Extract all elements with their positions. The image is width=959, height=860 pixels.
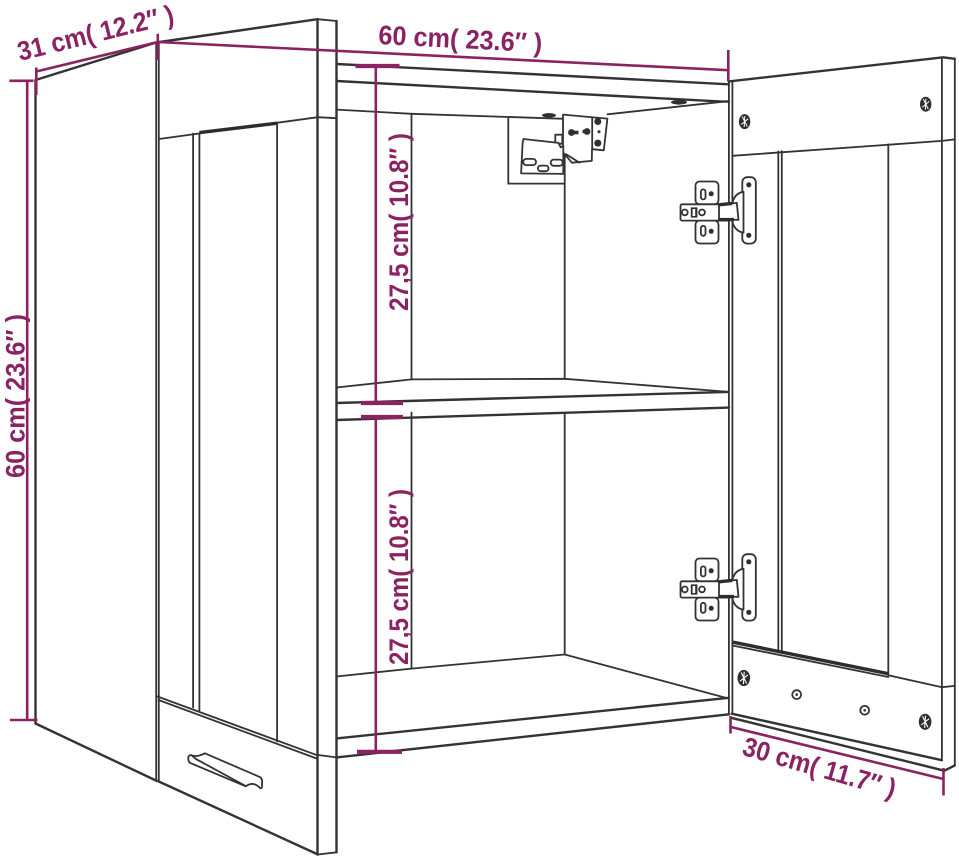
svg-text:27,5 cm( 10.8″ ): 27,5 cm( 10.8″ ) xyxy=(384,489,414,665)
svg-text:60 cm( 23.6″ ): 60 cm( 23.6″ ) xyxy=(1,314,31,478)
svg-text:27,5 cm( 10.8″ ): 27,5 cm( 10.8″ ) xyxy=(384,133,414,311)
